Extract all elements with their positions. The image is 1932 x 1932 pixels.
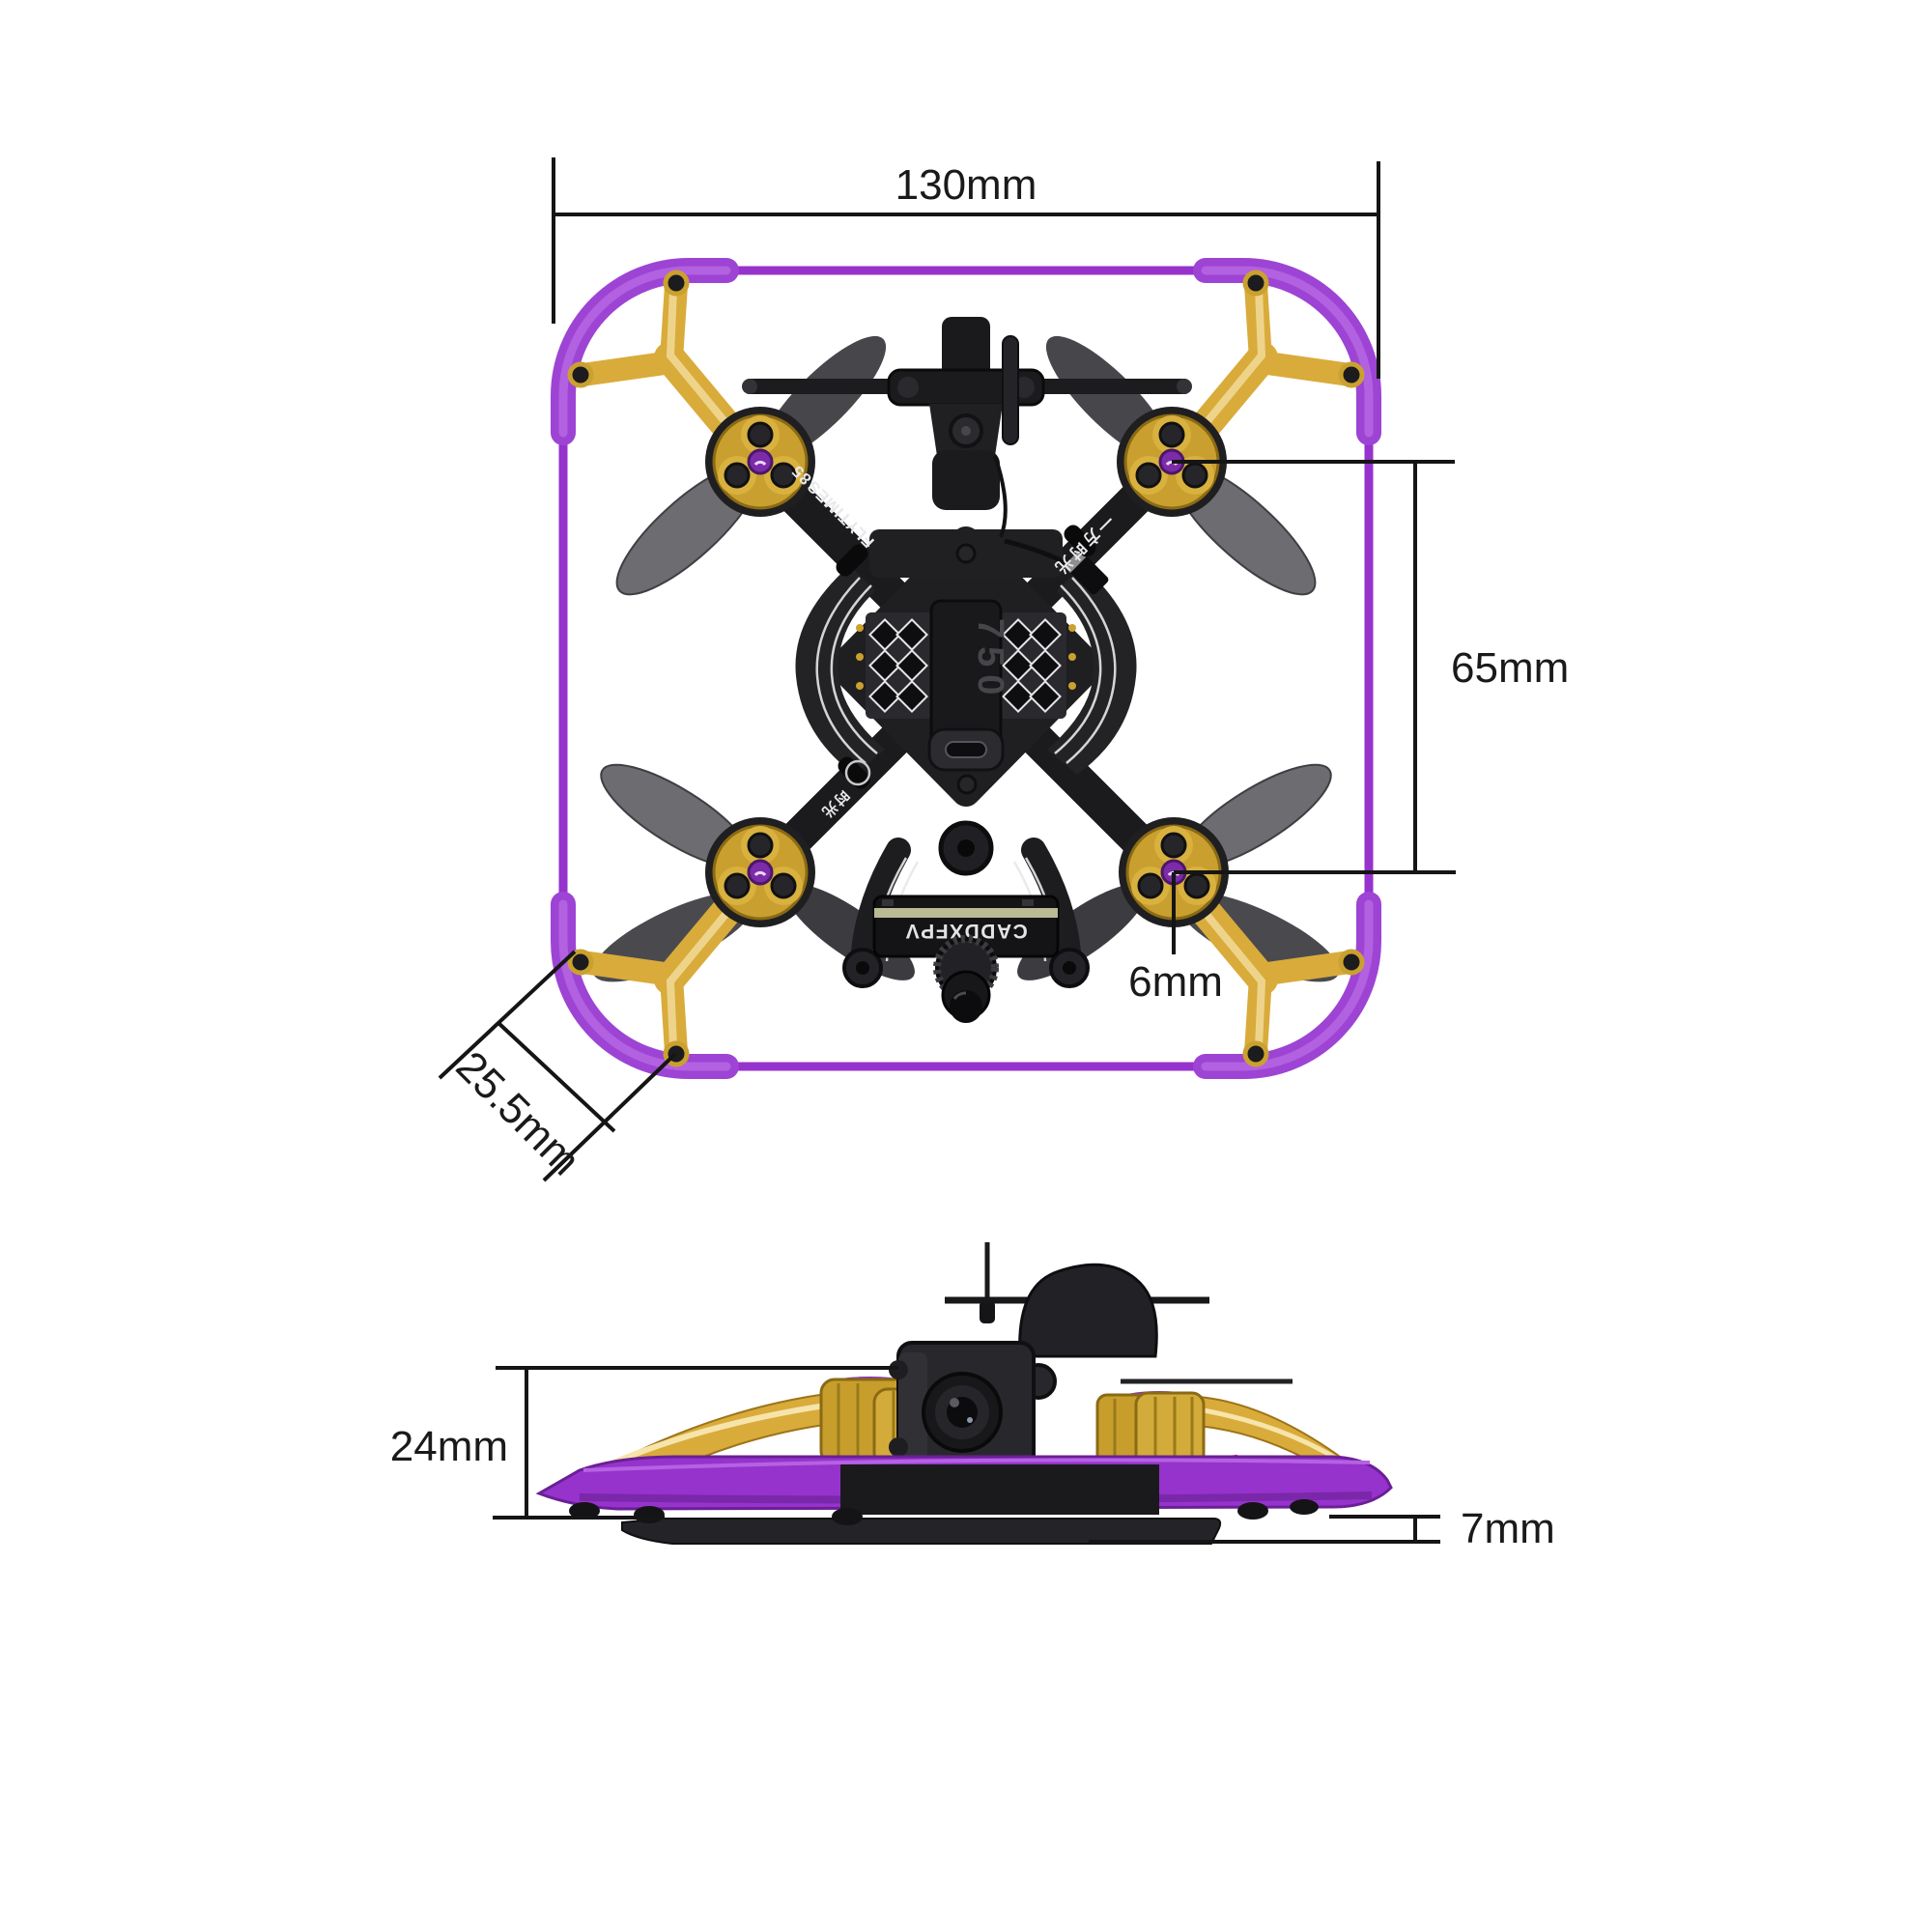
- bottom-clearance-label: 7mm: [1461, 1505, 1555, 1552]
- motor: [705, 407, 815, 517]
- motor: [705, 817, 815, 927]
- camera-gimbal: CADDXFPV: [844, 823, 1088, 1023]
- under-stack: [840, 1464, 1159, 1515]
- motor-span-label: 65mm: [1451, 644, 1569, 692]
- battery-strap: 750: [931, 601, 1010, 746]
- overall-width-label: 130mm: [895, 161, 1037, 209]
- usb-port: [929, 729, 1003, 770]
- hd-cam-hood: [1020, 1264, 1157, 1356]
- antenna-tube: [1003, 336, 1018, 444]
- hd-cam-mount: [889, 317, 1072, 566]
- corner-section-label: 25.5mm: [447, 1042, 589, 1184]
- dimension-diagram-page: 750: [0, 0, 1932, 1932]
- drone-top-view: 750: [563, 270, 1369, 1066]
- front-camera: [889, 1343, 1034, 1468]
- drone-front-view: [539, 1242, 1391, 1544]
- diagram-canvas: 750: [0, 0, 1932, 1932]
- battery-strap-label: 750: [970, 618, 1010, 702]
- overall-height-label: 24mm: [390, 1423, 508, 1470]
- prop-shaft-label: 6mm: [1128, 958, 1223, 1006]
